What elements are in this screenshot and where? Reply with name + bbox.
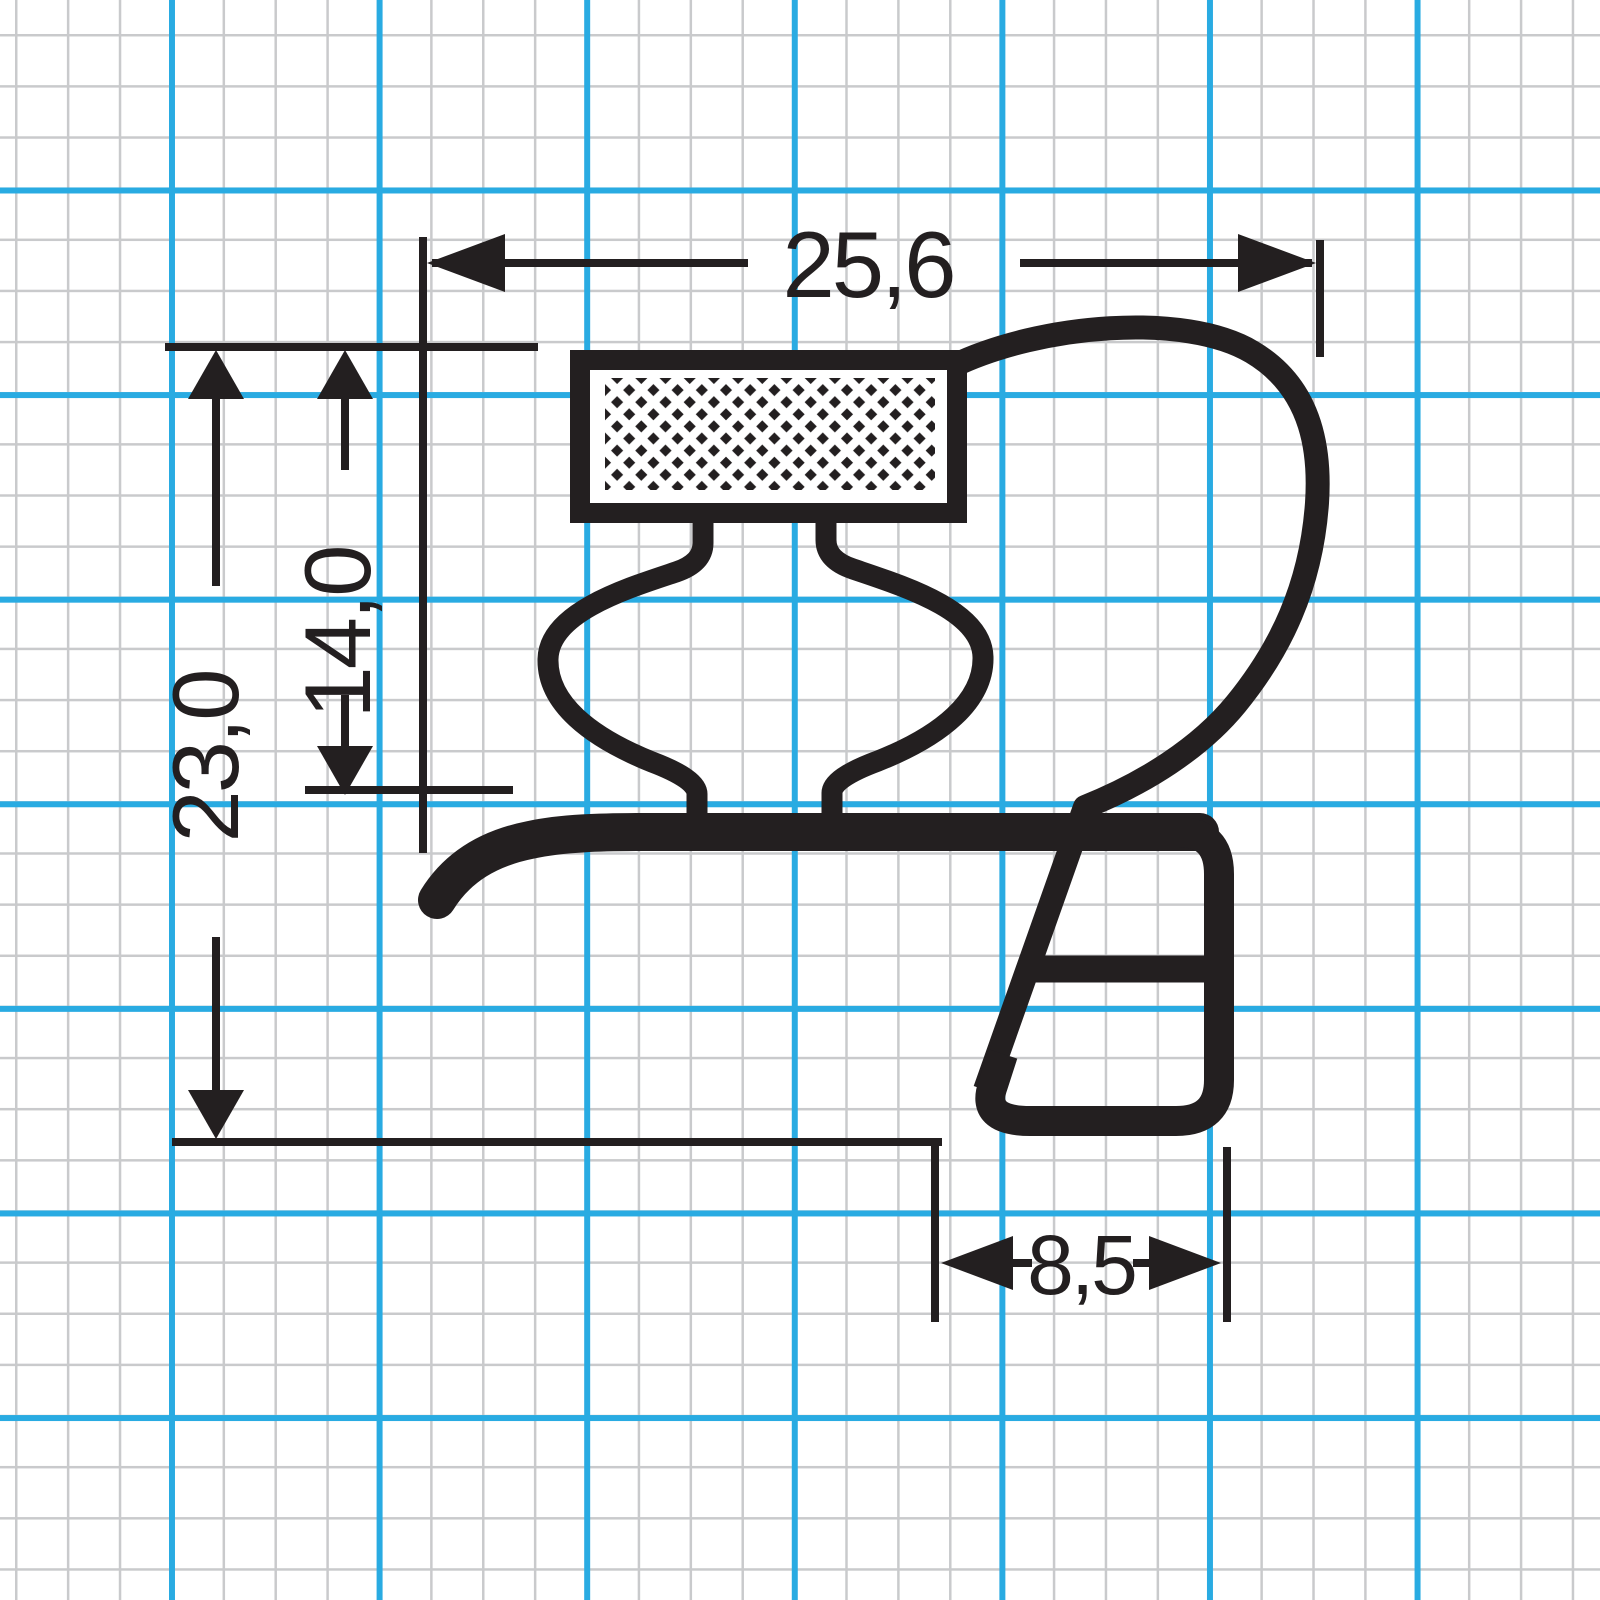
dimension-label-upper-height: 14,0 [285, 548, 390, 719]
graph-paper-canvas: 25,6 14,0 23,0 [0, 0, 1600, 1600]
bulb-left-wall [548, 512, 703, 818]
bulb-right-wall [826, 512, 983, 818]
arrowhead-right [1238, 234, 1316, 292]
dimension-foot-width: 8,5 [935, 1140, 1227, 1322]
base-bar-and-tail [437, 832, 1200, 900]
magnet-crosshatch [605, 378, 935, 490]
arrowhead-up [317, 350, 373, 399]
arrowhead-left [427, 234, 505, 292]
gasket-profile [437, 327, 1318, 1121]
arrowhead-down [188, 1090, 244, 1139]
dimension-label-top-width: 25,6 [783, 212, 954, 317]
arrowhead-left [941, 1236, 1013, 1290]
dimension-label-total-height: 23,0 [153, 672, 258, 843]
dimension-label-foot-width: 8,5 [1027, 1218, 1135, 1312]
gasket-profile-drawing: 25,6 14,0 23,0 [0, 0, 1600, 1600]
arrowhead-up [188, 350, 244, 399]
arrowhead-right [1149, 1236, 1221, 1290]
